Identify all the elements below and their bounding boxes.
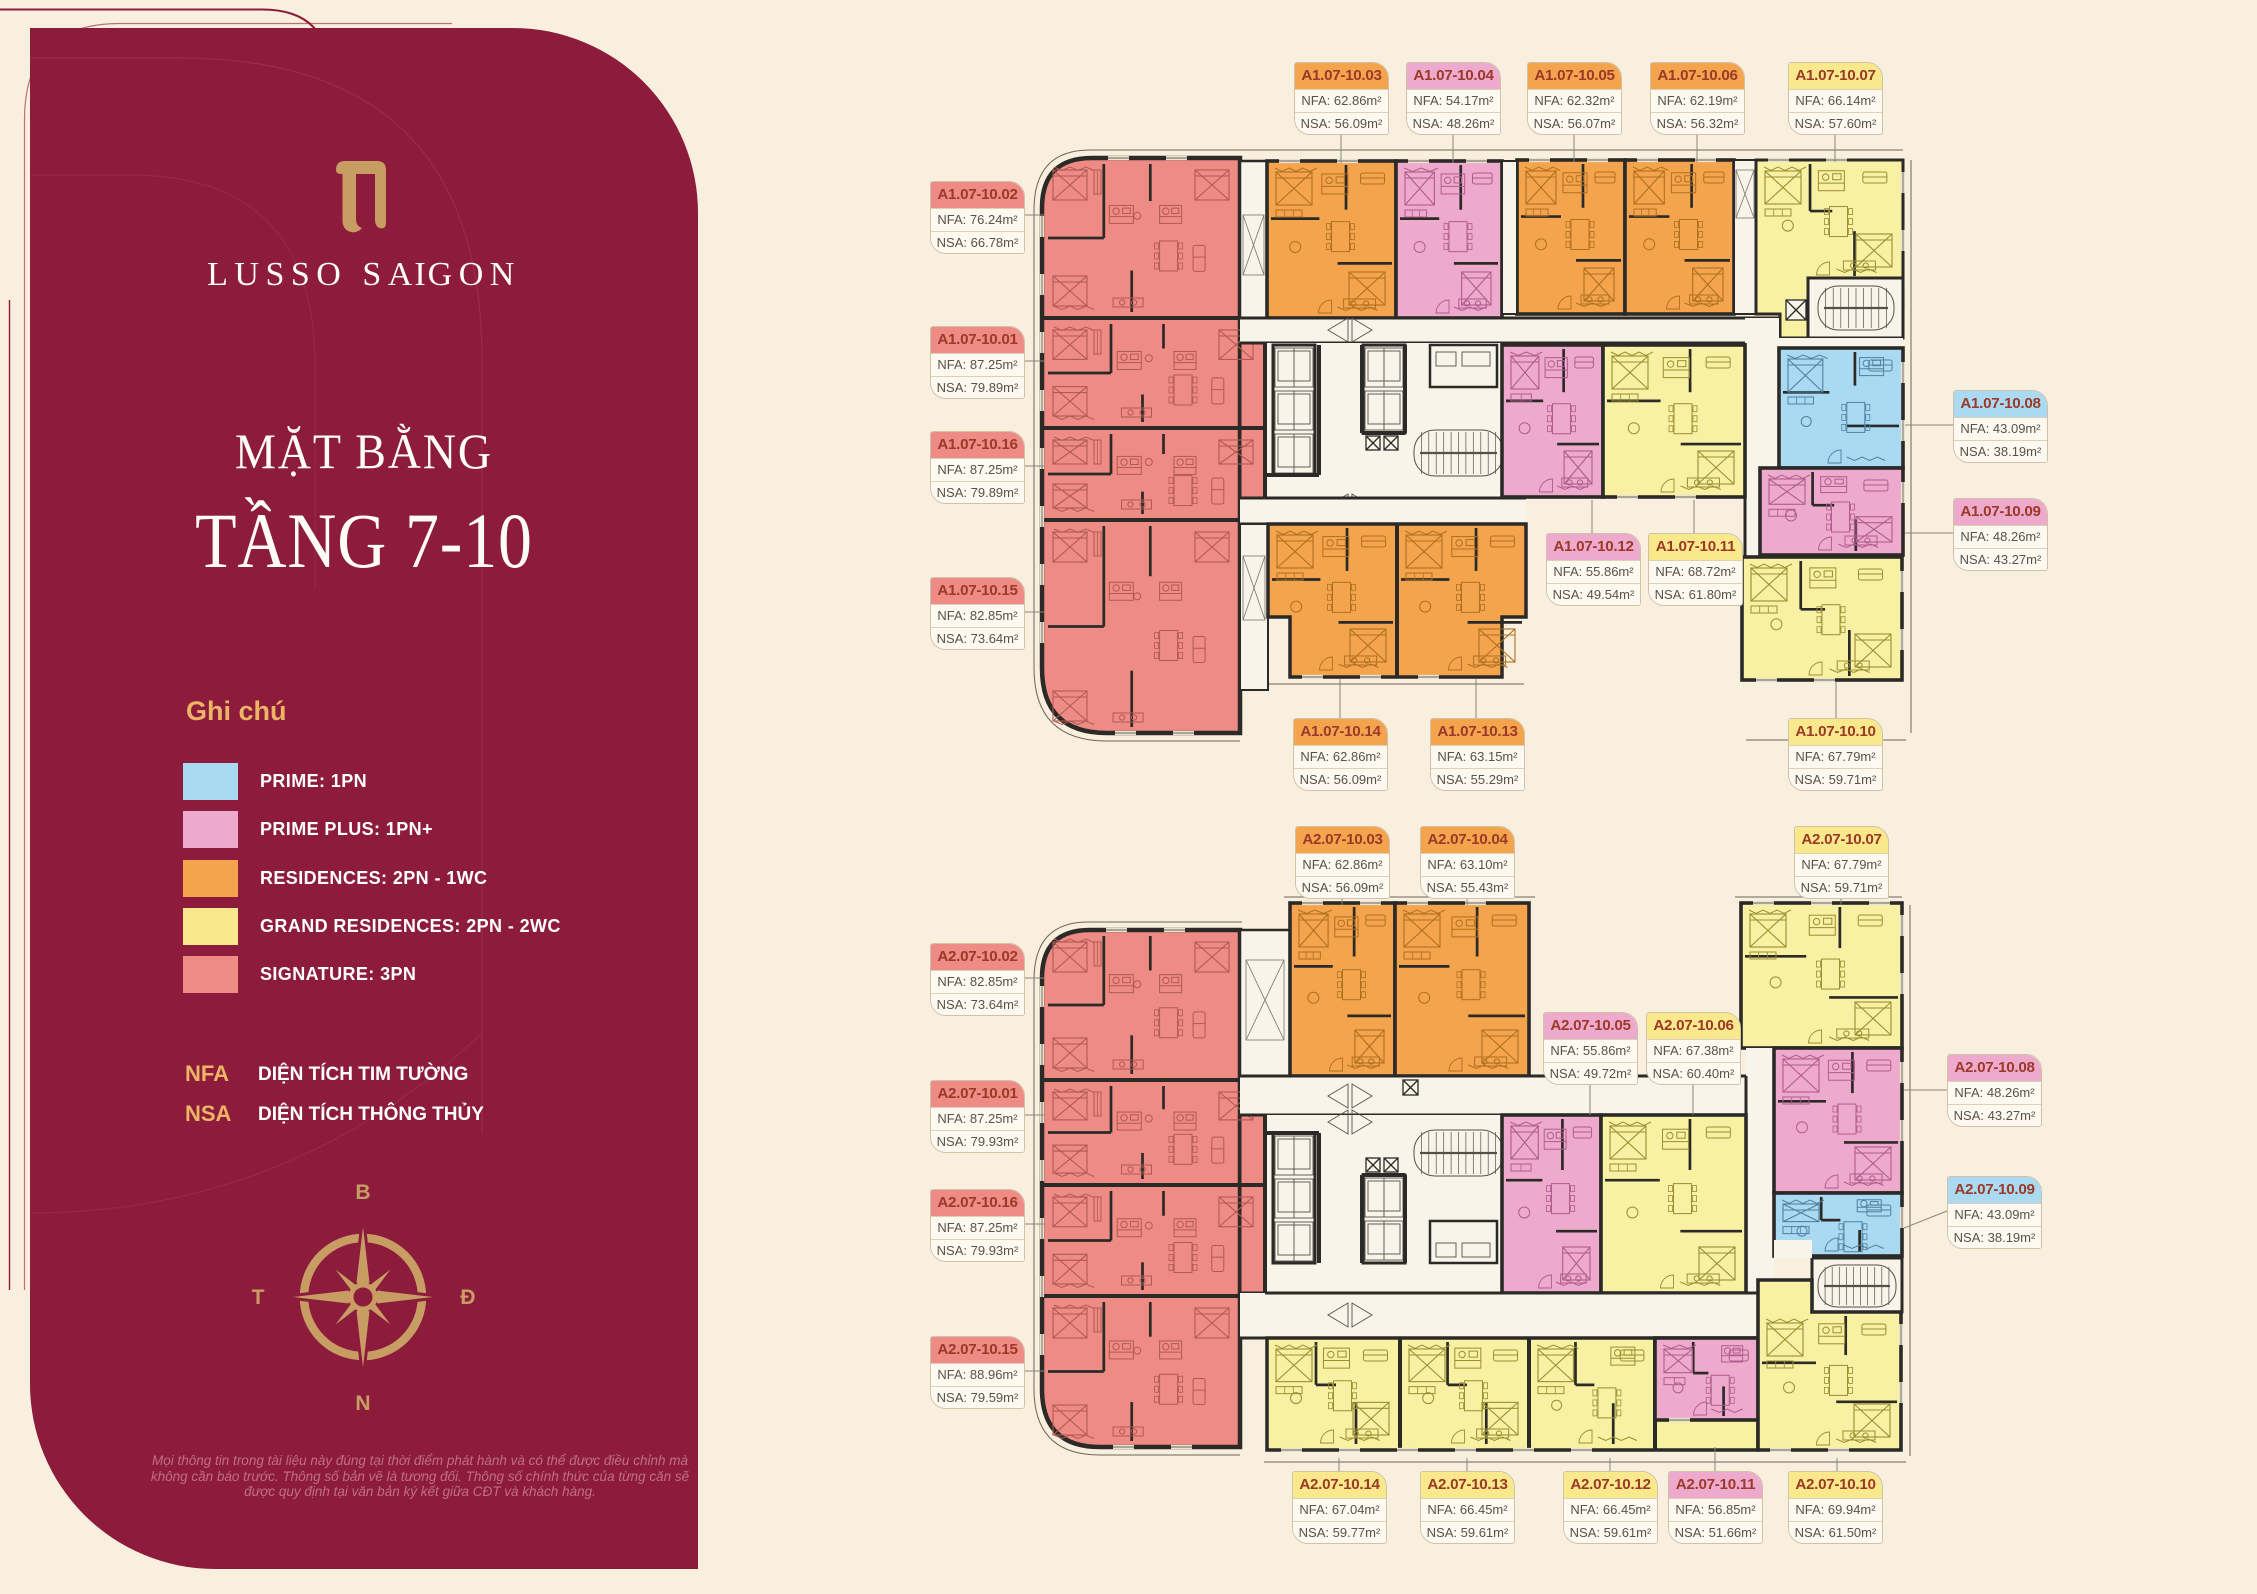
svg-text:Đ: Đ <box>460 1286 475 1309</box>
svg-text:N: N <box>355 1392 370 1415</box>
svg-text:B: B <box>355 1181 370 1204</box>
svg-text:T: T <box>252 1286 265 1309</box>
